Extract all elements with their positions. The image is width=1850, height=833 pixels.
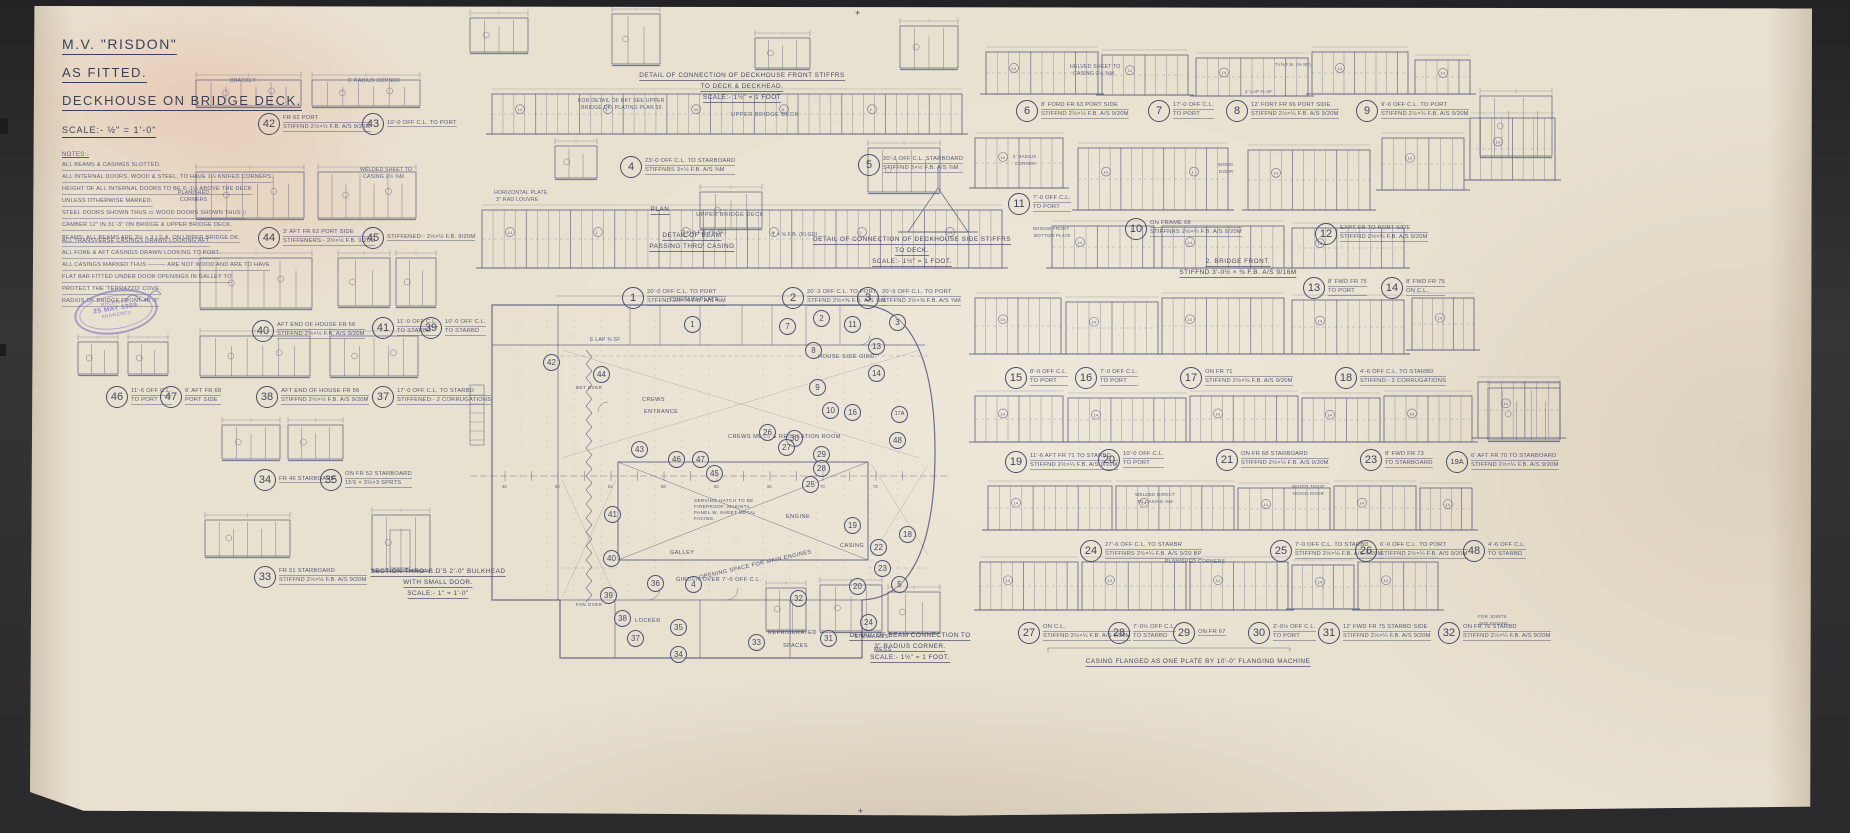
detail-number: 39: [420, 317, 442, 339]
annotation-text: 3" RAD LOUVRE: [496, 197, 539, 203]
svg-text:14: 14: [1360, 501, 1365, 506]
detail-caption-line: STIFFND 2½×¼ F.B. A/S 9/20M: [1205, 378, 1293, 386]
annotation-text: DOOR: [1219, 169, 1233, 174]
detail-number: 6: [1016, 100, 1038, 122]
detail-number: 2: [782, 287, 804, 309]
section-heading-line: TO DECK & DECKHEAD.: [701, 83, 784, 92]
annotation-text: FOR DETAIL OF BKT SEE UPPER: [578, 98, 665, 104]
detail-caption-line: STIFFND 3×½ F.B. A/S ⅜M: [883, 165, 963, 173]
detail-callout-35: 35ON FR 52 STARBOARD15'6 × 3½×3 SPRTS: [320, 469, 412, 491]
detail-caption-line: AFT END OF HOUSE FR 56: [281, 388, 369, 396]
detail-number: 37: [372, 386, 394, 408]
annotation-text: TO CASING ⅜M: [1137, 499, 1173, 504]
detail-callout-39: 3910'-0 OFF C.L.TO STARBD: [420, 317, 486, 339]
svg-text:14: 14: [1094, 413, 1099, 418]
plan-item-circle: 48: [889, 432, 906, 449]
notes-block: NOTES:- ALL BEAMS & CASINGS SLOTTED.ALL …: [62, 152, 262, 247]
detail-caption-line: 12' FWD FR 75 STARBD SIDE: [1343, 624, 1431, 632]
section-heading-line: DETAIL OF CONNECTION OF DECKHOUSE SIDE S…: [813, 236, 1011, 245]
detail-caption: 6' AFT FR 68PORT SIDE: [185, 388, 221, 406]
svg-text:14: 14: [1264, 502, 1269, 507]
svg-text:34: 34: [694, 107, 699, 112]
detail-caption-line: 17'-0 OFF C.L. TO STARBD: [397, 388, 491, 396]
svg-text:14: 14: [1216, 411, 1221, 416]
detail-caption: 8' FWD FR 75TO PORT: [1328, 279, 1367, 297]
detail-callout-3: 320'-9 OFF C.L. TO PORTSTFFND 2½×⅜ F.B. …: [857, 287, 961, 309]
detail-callout-43: 4310'-0 OFF C.L. TO PORT: [362, 113, 457, 135]
plan-room-label: PANEL W. SHEET METAL: [694, 510, 756, 515]
detail-callout-13: 138' FWD FR 75TO PORT: [1303, 277, 1367, 299]
detail-caption-line: TO PORT: [1123, 460, 1164, 468]
detail-caption: FR 62 PORTSTIFFND 2½×½ F.B. A/S 9/20M: [283, 115, 371, 133]
plan-item-circle: 31: [820, 630, 837, 647]
svg-text:14: 14: [1410, 411, 1415, 416]
svg-text:2: 2: [860, 230, 863, 235]
svg-text:14: 14: [1216, 578, 1221, 583]
svg-text:14: 14: [1001, 317, 1006, 322]
detail-caption: ON FR 76 STARBDSTIFFND 2½×¼ F.B. A/S 9/2…: [1463, 624, 1551, 642]
detail-caption-line: 6' AFT FR 70 TO STARBOARD: [1471, 453, 1559, 461]
annotation-text: CASING 2½ ⅜M: [363, 174, 404, 180]
detail-caption-line: 10'-0 OFF C.L.: [445, 319, 486, 327]
svg-text:14: 14: [1128, 68, 1133, 73]
detail-caption: 2'-0½ OFF C.L.TO PORT: [1273, 624, 1316, 642]
detail-number: 30: [1248, 622, 1270, 644]
detail-caption: 27'-6 OFF C.L. TO STARBRSTIFFNRS 2½×¼ F.…: [1105, 542, 1202, 560]
detail-callout-42: 42FR 62 PORTSTIFFND 2½×½ F.B. A/S 9/20M: [258, 113, 371, 135]
note-line: UNLESS OTHERWISE MARKED.: [62, 198, 153, 207]
plan-item-circle: 42: [543, 354, 560, 371]
detail-callout-8: 812' FORT FR 66 PORT SIDESTIFFND 2½×¼ F.…: [1226, 100, 1339, 122]
detail-number: 47: [160, 386, 182, 408]
detail-caption-line: STIFFND 2½×¼ F.B. A/S 9/20M: [1463, 633, 1551, 641]
section-heading-line: PLAN: [651, 206, 670, 215]
plan-item-circle: 2: [813, 310, 830, 327]
plan-item-circle: 24: [860, 614, 877, 631]
scan-background: 1413482141348215141414141414141141414141…: [0, 0, 1850, 833]
svg-text:58: 58: [661, 484, 666, 489]
detail-number: 3: [857, 287, 879, 309]
detail-caption: 8'-0 OFF C.L.TO PORT: [1030, 369, 1068, 387]
detail-caption: EXPT FR TO PORT SIDESTIFFND 2½×¼ F.B. A/…: [1340, 225, 1428, 243]
detail-number: 33: [254, 566, 276, 588]
detail-number: 31: [1318, 622, 1340, 644]
detail-number: 9: [1356, 100, 1378, 122]
svg-text:14: 14: [1104, 169, 1109, 174]
section-heading: SECTION THRO' B.D'S 2'-0" BULKHEADWITH S…: [370, 568, 505, 601]
detail-caption: 12' FWD FR 75 STARBD SIDESTIFFND 2½×¼ F.…: [1343, 624, 1431, 642]
plan-room-label: SERVING HATCH TO BE: [694, 498, 754, 503]
svg-text:15: 15: [948, 230, 953, 235]
detail-caption-line: TO STARBOARD: [1385, 460, 1433, 468]
detail-callout-12: 12EXPT FR TO PORT SIDESTIFFND 2½×¼ F.B. …: [1315, 223, 1428, 245]
detail-number: 1: [622, 287, 644, 309]
detail-caption-line: STIFFND 2½×¼ F.B. A/S 9/20M: [1041, 111, 1129, 119]
detail-number: 21: [1216, 449, 1238, 471]
detail-caption-line: ON FR 68 STARBOARD: [1241, 451, 1329, 459]
plan-room-label: FACING.: [694, 516, 715, 521]
detail-number: 19A: [1446, 451, 1468, 473]
section-heading-line: SCALE:- 1½" = 1 FOOT.: [872, 258, 952, 267]
svg-text:14: 14: [1001, 411, 1006, 416]
detail-callout-23: 238' FWD FR 73TO STARBOARD: [1360, 449, 1433, 471]
detail-number: 46: [106, 386, 128, 408]
section-heading-line: SCALE:- 1½" = 1 FOOT.: [870, 654, 950, 663]
detail-caption-line: 23'-0 OFF C.L. TO STARBOARD: [645, 158, 735, 166]
registration-mark-top: +: [855, 8, 860, 18]
section-heading: DETAIL OF CONNECTION OF DECKHOUSE FRONT …: [639, 72, 845, 105]
annotation-text: WELDED DIRECT: [1135, 492, 1175, 497]
plan-room-label: SPACES: [783, 643, 808, 649]
note-line: HEIGHT OF ALL INTERNAL DOORS TO BE 6'-1½…: [62, 186, 252, 195]
detail-callout-9: 99'-6 OFF C.L. TO PORTSTIFFND 2½×¼ F.B. …: [1356, 100, 1469, 122]
detail-number: 12: [1315, 223, 1337, 245]
detail-caption-line: ON C.L.: [1406, 288, 1445, 296]
detail-caption-line: 8' FORD FR 63 PORT SIDE: [1041, 102, 1129, 110]
annotation-text: 5' RADIUS: [1013, 154, 1036, 159]
detail-caption: 8' FWD FR 73TO STARBOARD: [1385, 451, 1433, 469]
detail-callout-15: 158'-0 OFF C.L.TO PORT: [1005, 367, 1068, 389]
plan-item-circle: 9: [809, 379, 826, 396]
detail-number: 38: [256, 386, 278, 408]
detail-caption-line: TO PORT: [1033, 204, 1071, 212]
plan-item-circle: 4: [685, 576, 702, 593]
section-heading: CASING FLANGED AS ONE PLATE BY 10'-0" FL…: [1086, 658, 1311, 669]
detail-caption-line: 7'-0 OFF C.L.: [1100, 369, 1138, 377]
plan-room-label: CURTAIN PLATE: [670, 297, 719, 303]
detail-caption: ON FR 67: [1198, 629, 1226, 638]
annotation-text: PLANISHED: [178, 190, 209, 196]
detail-number: 27: [1018, 622, 1040, 644]
detail-caption-line: STIFFND 2½×¼ F.B. A/S 9/20M: [1381, 111, 1469, 119]
detail-caption-line: STIFFND 2½×¼ F.B. A/S 9/20M: [1241, 460, 1329, 468]
detail-caption: ON FR 52 STARBOARD15'6 × 3½×3 SPRTS: [345, 471, 412, 489]
plan-room-label: FAN OVER: [576, 602, 602, 607]
plan-item-circle: 23: [874, 560, 891, 577]
plan-item-circle: 17A: [891, 406, 908, 423]
annotation-text: WOOD: [1218, 162, 1233, 167]
detail-caption: 17'-0 OFF C.L. TO STARBDSTIFFENED:- 2 CO…: [397, 388, 491, 406]
svg-text:14: 14: [1328, 413, 1333, 418]
detail-caption-line: 8' FWD FR 75: [1406, 279, 1445, 287]
section-heading-line: UPPER BRIDGE DECK: [731, 112, 799, 119]
svg-text:54: 54: [608, 484, 613, 489]
detail-caption-line: EXPT FR TO PORT SIDE: [1340, 225, 1428, 233]
detail-number: 40: [252, 320, 274, 342]
plan-item-circle: 41: [604, 506, 621, 523]
svg-text:14: 14: [1338, 66, 1343, 71]
plan-item-circle: 43: [631, 441, 648, 458]
drawing-scale: SCALE:- ½" = 1'-0": [62, 125, 156, 138]
detail-caption-line: STIFFND 2½×½ F.B. A/S 9/20M: [279, 577, 367, 585]
detail-number: 16: [1075, 367, 1097, 389]
detail-caption: 9'-6 OFF C.L. TO PORTSTIFFND 2½×¼ F.B. A…: [1381, 102, 1469, 120]
detail-caption-line: ON FR 67: [1198, 629, 1226, 637]
plan-item-circle: 20: [849, 578, 866, 595]
detail-number: 13: [1303, 277, 1325, 299]
detail-number: 45: [362, 227, 384, 249]
detail-caption-line: FR 62 PORT: [283, 115, 371, 123]
detail-caption-line: TO PORT: [1100, 378, 1138, 386]
detail-caption: ON FR 71STIFFND 2½×¼ F.B. A/S 9/20M: [1205, 369, 1293, 387]
plan-item-circle: 39: [600, 587, 617, 604]
detail-number: 42: [258, 113, 280, 135]
scan-artifact: [0, 344, 6, 356]
detail-caption: STIFFENED:- 2½×½ F.B. 9/20M: [387, 234, 475, 243]
svg-text:66: 66: [767, 484, 772, 489]
plan-item-circle: 1: [684, 316, 701, 333]
detail-caption: 7'-0½ OFF C.L.TO STARBD: [1133, 624, 1176, 642]
plan-item-circle: 47: [692, 451, 709, 468]
detail-number: 14: [1381, 277, 1403, 299]
annotation-text: WATER TIGHT: [1292, 484, 1325, 489]
plan-item-circle: 19: [844, 517, 861, 534]
detail-caption-line: ON FRAME 68: [1150, 220, 1242, 228]
detail-number: 41: [372, 317, 394, 339]
plan-item-circle: 32: [790, 590, 807, 607]
svg-text:50: 50: [555, 484, 560, 489]
detail-caption-line: STIFFND 2½×½ F.B. A/S 9/20M: [277, 331, 365, 339]
annotation-text: E LAP ⅜ SF: [590, 337, 620, 343]
section-heading-line: DETAIL OF CONNECTION OF DECKHOUSE FRONT …: [639, 72, 845, 81]
annotation-text: BRIDGE FRONT: [1033, 226, 1069, 231]
plan-room-label: CASING: [840, 543, 864, 549]
detail-callout-7: 717'-0 OFF C.L.TO PORT: [1148, 100, 1214, 122]
detail-caption-line: STIFFND:- 2 CORRUGATIONS: [1360, 378, 1446, 386]
plan-item-circle: 3: [889, 314, 906, 331]
detail-caption: 23'-0 OFF C.L. TO STARBOARDSTIFFNRS 3×½ …: [645, 158, 735, 176]
plan-item-circle: 26: [759, 424, 776, 441]
plan-item-circle: 25: [802, 476, 819, 493]
detail-callout-40: 40AFT END OF HOUSE FR 56STIFFND 2½×½ F.B…: [252, 320, 365, 342]
annotation-text: CORNERS: [180, 197, 207, 203]
plan-item-circle: 34: [670, 646, 687, 663]
svg-text:14: 14: [518, 107, 523, 112]
plan-item-circle: 10: [822, 402, 839, 419]
plan-item-circle: 18: [899, 526, 916, 543]
svg-text:14: 14: [1001, 155, 1006, 160]
section-heading-line: SECTION THRO' B.D'S 2'-0" BULKHEAD: [370, 568, 505, 577]
detail-caption-line: 20'-3 OFF C.L. STARBOARD: [883, 156, 963, 164]
detail-callout-37: 3717'-0 OFF C.L. TO STARBDSTIFFENED:- 2 …: [372, 386, 491, 408]
annotation-text: CASING 2½ ⅜M: [1073, 71, 1114, 77]
detail-caption-line: 6' AFT FR 68: [185, 388, 221, 396]
annotation-text: 2' LAP ⅜ SF: [1245, 89, 1272, 94]
svg-text:14: 14: [1441, 71, 1446, 76]
plan-room-label: REFRIGERATED: [768, 630, 817, 636]
detail-callout-21: 21ON FR 68 STARBOARDSTIFFND 2½×¼ F.B. A/…: [1216, 449, 1329, 471]
detail-caption: 4'-6 OFF C.L.TO STARBD: [1488, 542, 1526, 560]
detail-caption-line: 7'-0½ OFF C.L.: [1133, 624, 1176, 632]
svg-text:14: 14: [1496, 139, 1501, 144]
section-heading-line: 2. BRIDGE FRONT.: [1206, 258, 1270, 267]
detail-callout-47: 476' AFT FR 68PORT SIDE: [160, 386, 221, 408]
plan-item-circle: 38: [614, 610, 631, 627]
detail-caption-line: STIFFNRS 3×½ F.B. A/S ⅜M: [645, 167, 735, 175]
plan-room-label: STEWARDS: [854, 634, 889, 640]
svg-text:2: 2: [870, 107, 873, 112]
detail-callout-44: 443' AFT FR 62 PORT SIDESTIFFENERS:- 2½×…: [258, 227, 375, 249]
svg-text:1: 1: [1192, 169, 1195, 174]
detail-callout-26: 266'-0 OFF C.L. TO PORTSTIFFND 2½×¼ F.B.…: [1355, 540, 1468, 562]
detail-caption-line: STIFFNRS 2½×¼ F.B. A/S 9/20M: [1150, 229, 1242, 237]
annotation-text: HORIZONTAL PLATE: [494, 190, 548, 196]
detail-caption: 8' FWD FR 75ON C.L.: [1406, 279, 1445, 297]
plan-item-circle: 13: [868, 338, 885, 355]
detail-caption-line: TO PORT: [1273, 633, 1316, 641]
detail-caption: 10'-0 OFF C.L. TO PORT: [387, 120, 457, 129]
detail-number: 35: [320, 469, 342, 491]
svg-text:14: 14: [1408, 156, 1413, 161]
annotation-text: BOTTOM PLATE: [1034, 233, 1071, 238]
annotation-text: BRIDGE DK. PLATING PLAN 59.: [581, 105, 663, 111]
detail-callout-48: 484'-6 OFF C.L.TO STARBD: [1463, 540, 1526, 562]
detail-caption: AFT END OF HOUSE FR 56STIFFND 2½×½ F.B. …: [281, 388, 369, 406]
detail-number: 4: [620, 156, 642, 178]
detail-caption-line: STIFFENED:- 2½×½ F.B. 9/20M: [387, 234, 475, 242]
detail-caption: 10'-0 OFF C.L.TO STARBD: [445, 319, 486, 337]
detail-number: 8: [1226, 100, 1248, 122]
note-line: STEEL DOORS SHOWN THUS ▭ WOOD DOORS SHOW…: [62, 210, 246, 219]
plan-item-circle: 40: [603, 550, 620, 567]
svg-text:14: 14: [1384, 578, 1389, 583]
detail-caption: 6' AFT FR 70 TO STARBOARDSTIFFND 2½×¼ F.…: [1471, 453, 1559, 471]
note-line: FLAT BAR FITTED UNDER DOOR OPENINGS IN G…: [62, 274, 232, 283]
detail-number: 29: [1173, 622, 1195, 644]
detail-caption-line: STIFFND 2½×¼ F.B. A/S 9/20M: [1251, 111, 1339, 119]
section-heading-line: SCALE:- 1½" = 1 FOOT: [703, 94, 781, 103]
detail-caption-line: 8' FWD FR 75: [1328, 279, 1367, 287]
detail-caption-line: 4'-6 OFF C.L. TO STARBD: [1360, 369, 1446, 377]
detail-caption-line: PORT SIDE: [185, 397, 221, 405]
detail-caption: 8' FORD FR 63 PORT SIDESTIFFND 2½×¼ F.B.…: [1041, 102, 1129, 120]
detail-caption: 12' FORT FR 66 PORT SIDESTIFFND 2½×¼ F.B…: [1251, 102, 1339, 120]
section-heading: UPPER BRIDGE DECK: [731, 112, 799, 121]
detail-number: 43: [362, 113, 384, 135]
detail-caption-line: STIFFND 2½×¼ F.B. A/S 9/20M: [1380, 551, 1468, 559]
section-heading-line: UPPER BRIDGE DECK: [696, 212, 764, 219]
svg-text:14: 14: [1222, 70, 1227, 75]
detail-caption-line: STIFFND 2½×¼ F.B. A/S 9/20M: [1343, 633, 1431, 641]
plan-room-label: MESS: [874, 647, 892, 653]
detail-callout-6: 68' FORD FR 63 PORT SIDESTIFFND 2½×¼ F.B…: [1016, 100, 1129, 122]
svg-text:14: 14: [1078, 240, 1083, 245]
section-heading: 2. BRIDGE FRONT.STIFFND 3'-0½ × ⅜ F.B. A…: [1179, 258, 1296, 280]
detail-caption-line: ON FR 52 STARBOARD: [345, 471, 412, 479]
detail-number: 48: [1463, 540, 1485, 562]
svg-text:14: 14: [1188, 240, 1193, 245]
note-line: CAMBER 12" IN 31'-3" ON BRIDGE & UPPER B…: [62, 222, 232, 231]
section-heading: PLAN: [651, 206, 670, 217]
plan-room-label: BKT OVER: [576, 385, 602, 390]
drawing-status: AS FITTED.: [62, 65, 147, 83]
detail-callout-33: 33FR 51 STARBOARDSTIFFND 2½×½ F.B. A/S 9…: [254, 566, 367, 588]
plan-item-circle: 35: [670, 619, 687, 636]
section-heading-line: WITH SMALL DOOR.: [403, 579, 473, 588]
detail-callout-29: 29ON FR 67: [1173, 622, 1226, 644]
detail-number: 32: [1438, 622, 1460, 644]
registration-mark-bottom: +: [858, 806, 863, 816]
detail-caption-line: 27'-6 OFF C.L. TO STARBR: [1105, 542, 1202, 550]
detail-callout-19A: 19A6' AFT FR 70 TO STARBOARDSTIFFND 2½×¼…: [1446, 451, 1559, 473]
plan-item-circle: 28: [813, 460, 830, 477]
detail-callout-18: 184'-6 OFF C.L. TO STARBDSTIFFND:- 2 COR…: [1335, 367, 1446, 389]
plan-item-circle: 14: [868, 365, 885, 382]
detail-caption-line: TO STARBD: [1133, 633, 1176, 641]
annotation-text: 7 × ⅝ F.B. (⅜ SF): [682, 230, 726, 236]
note-line: ALL CASINGS MARKED THUS ——— ARE NOT WOOD…: [62, 262, 270, 271]
detail-callout-28: 287'-0½ OFF C.L.TO STARBD: [1108, 622, 1176, 644]
section-heading-line: TO DECK.: [895, 247, 929, 256]
detail-callout-38: 38AFT END OF HOUSE FR 56STIFFND 2½×½ F.B…: [256, 386, 369, 408]
detail-callout-20: 2010'-0 OFF C.L.TO PORT: [1098, 449, 1164, 471]
note-line: ALL TRANSVERSE CASINGS DRAWN LOOKING AFT…: [62, 238, 210, 247]
detail-caption-line: 17'-0 OFF C.L.: [1173, 102, 1214, 110]
note-line: ALL FORE & AFT CASINGS DRAWN LOOKING TO …: [62, 250, 220, 259]
svg-text:14: 14: [1274, 171, 1279, 176]
annotation-text: 5' RADIUS CORNER: [348, 78, 400, 84]
detail-caption: 17'-0 OFF C.L.TO PORT: [1173, 102, 1214, 120]
annotation-text: SEE ENGINE: [1479, 621, 1509, 626]
detail-number: 26: [1355, 540, 1377, 562]
annotation-text: BRACKET: [230, 78, 256, 84]
svg-text:14: 14: [1108, 578, 1113, 583]
section-heading: DETAIL OF CONNECTION OF DECKHOUSE SIDE S…: [813, 236, 1011, 269]
detail-caption-line: 2'-0½ OFF C.L.: [1273, 624, 1316, 632]
svg-text:14: 14: [1006, 578, 1011, 583]
detail-caption: 7'-0 OFF C.L.TO PORT: [1033, 195, 1071, 213]
plan-item-circle: 11: [844, 316, 861, 333]
plan-room-label: HOUSE SIDE GIRD.: [818, 354, 877, 360]
detail-caption-line: TO PORT: [1173, 111, 1214, 119]
vessel-name: M.V. "RISDON": [62, 36, 177, 55]
svg-text:14: 14: [1504, 401, 1509, 406]
svg-text:14: 14: [1318, 318, 1323, 323]
detail-caption-line: 12' FORT FR 66 PORT SIDE: [1251, 102, 1339, 110]
detail-number: 28: [1108, 622, 1130, 644]
detail-number: 11: [1008, 193, 1030, 215]
svg-text:14: 14: [1188, 317, 1193, 322]
annotation-text: HELVED SHEET TO: [1070, 64, 1120, 70]
detail-caption-line: STIFFND 2½×¼ F.B. A/S 9/20M: [1340, 234, 1428, 242]
detail-caption-line: 10'-0 OFF C.L.: [1123, 451, 1164, 459]
detail-number: 19: [1005, 451, 1027, 473]
plan-item-circle: 37: [627, 630, 644, 647]
svg-text:14: 14: [1446, 502, 1451, 507]
detail-callout-17: 17ON FR 71STIFFND 2½×¼ F.B. A/S 9/20M: [1180, 367, 1293, 389]
detail-caption-line: STIFFND 2½×½ F.B. A/S 9/20M: [281, 397, 369, 405]
section-heading-line: PASSING THRO' CASING: [649, 243, 734, 252]
annotation-text: PLANISHED CORNERS: [1165, 559, 1225, 565]
plan-room-label: CREWS: [642, 397, 665, 403]
plan-item-circle: 7: [779, 318, 796, 335]
detail-caption-line: TO STARBD: [445, 328, 486, 336]
section-heading-line: STIFFND 3'-0½ × ⅜ F.B. A/S 9/16M: [1179, 269, 1296, 278]
detail-caption: 6'-0 OFF C.L. TO PORTSTIFFND 2½×¼ F.B. A…: [1380, 542, 1468, 560]
detail-caption-line: 8'-0 OFF C.L.: [1030, 369, 1068, 377]
detail-caption-line: 20'-9 OFF C.L. TO PORT: [882, 289, 961, 297]
plan-item-circle: 5: [891, 576, 908, 593]
detail-callout-30: 302'-0½ OFF C.L.TO PORT: [1248, 622, 1316, 644]
detail-callout-11: 117'-0 OFF C.L.TO PORT: [1008, 193, 1071, 215]
annotation-text: WELDED SHEET TO: [360, 167, 412, 173]
detail-caption-line: 20'-0 OFF C.L. TO PORT: [647, 289, 726, 297]
svg-text:14: 14: [1014, 501, 1019, 506]
note-line: ALL INTERNAL DOORS, WOOD & STEEL, TO HAV…: [62, 174, 273, 183]
detail-caption-line: STIFFND 2½×½ F.B. A/S 9/20M: [283, 124, 371, 132]
detail-number: 17: [1180, 367, 1202, 389]
detail-number: 7: [1148, 100, 1170, 122]
